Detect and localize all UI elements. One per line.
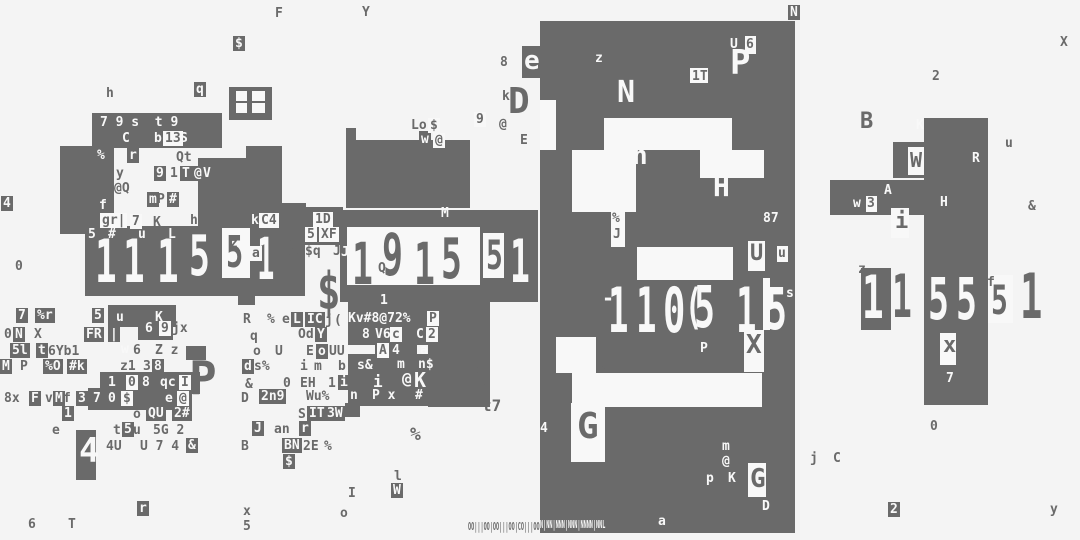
glyph: 2	[426, 327, 438, 342]
glyph: Y	[362, 6, 370, 19]
glyph: 1	[95, 232, 117, 292]
glyph: 2	[932, 70, 940, 83]
glyph: R	[972, 152, 980, 165]
glyph: j	[810, 452, 818, 465]
glyph: V	[203, 167, 211, 180]
glyph: n	[350, 389, 358, 402]
glyph: 0	[108, 392, 116, 405]
block	[572, 150, 636, 212]
glyph: e	[165, 392, 173, 405]
glyph: qc	[160, 376, 176, 389]
glyph: f	[99, 199, 107, 212]
block	[556, 337, 596, 373]
glyph: c	[390, 327, 402, 342]
glyph: 0	[15, 260, 23, 273]
glyph: @	[433, 133, 445, 148]
glyph: j	[287, 230, 295, 243]
glyph: I	[348, 487, 356, 500]
glyph: 3	[143, 360, 151, 373]
glyph: Q	[378, 262, 386, 275]
glyph: i	[300, 360, 308, 373]
glyph: 6	[472, 365, 488, 391]
glyph: G	[577, 409, 599, 445]
glyph: U	[750, 243, 763, 265]
glyph: W	[391, 483, 403, 498]
glyph: $	[283, 454, 295, 469]
glyph: (	[334, 314, 342, 327]
glyph: 1	[414, 235, 435, 293]
glyph: 1D	[313, 212, 333, 227]
glyph: @	[402, 371, 412, 387]
glyph: XF	[319, 227, 339, 242]
glyph: 5	[956, 270, 977, 328]
glyph: 87	[763, 212, 779, 225]
block	[246, 146, 282, 206]
block	[252, 91, 265, 101]
glyph: r	[299, 421, 311, 436]
glyph: z1	[120, 360, 136, 373]
glyph: %	[267, 313, 275, 326]
glyph: M	[441, 207, 449, 220]
block	[252, 103, 265, 113]
glyph: h	[106, 87, 114, 100]
glyph: 5	[189, 229, 210, 285]
glyph: 1	[123, 232, 145, 292]
glyph: FR	[84, 327, 104, 342]
glyph: $	[317, 266, 340, 318]
glyph: 5	[991, 281, 1008, 321]
glyph: @	[177, 391, 189, 406]
glyph: P	[427, 311, 439, 326]
glyph: P	[189, 355, 217, 401]
glyph: an	[274, 423, 290, 436]
glyph: x	[943, 335, 956, 357]
glyph: z	[595, 52, 603, 65]
block	[540, 100, 556, 150]
glyph: 6	[28, 518, 36, 531]
glyph: o	[253, 345, 261, 358]
glyph: 9	[474, 112, 486, 127]
glyph: M	[0, 359, 12, 374]
glyph: X	[1060, 36, 1068, 49]
glyph: D	[241, 392, 249, 405]
block	[346, 128, 356, 148]
glyph: @Q	[114, 182, 130, 195]
glyph: X	[746, 332, 762, 358]
glyph: u	[1005, 137, 1013, 150]
glyph: 1	[352, 235, 373, 293]
glyph: e	[52, 424, 60, 437]
glyph: 3	[76, 391, 88, 406]
glyph: P	[20, 360, 28, 373]
glyph: 6	[145, 322, 153, 335]
glyph: U	[275, 345, 283, 358]
glyph: m	[722, 440, 730, 453]
glyph: d	[242, 359, 254, 374]
glyph: %r	[35, 308, 55, 323]
glyph: P	[157, 193, 165, 206]
glyph: f	[63, 392, 71, 405]
glyph: 8x	[4, 392, 20, 405]
glyph: #	[167, 192, 179, 207]
glyph: x	[243, 505, 251, 518]
glyph: 6Yb1	[48, 345, 79, 358]
glyph: o	[340, 507, 348, 520]
glyph: QU	[146, 406, 166, 421]
glyph: s%	[254, 360, 270, 373]
glyph: F	[29, 391, 41, 406]
glyph: 1	[1020, 266, 1042, 328]
glyph: 7	[93, 392, 101, 405]
glyph: t	[36, 343, 48, 358]
glyph: T	[68, 518, 76, 531]
glyph: 2#	[172, 406, 192, 421]
glyph: R	[243, 313, 251, 326]
glyph: o	[133, 408, 141, 421]
glyph: #k	[67, 359, 87, 374]
glyph: N	[13, 327, 25, 342]
glyph: e	[524, 48, 540, 74]
glyph: s&	[357, 359, 373, 372]
glyph: 2n9	[259, 389, 286, 404]
glyph: 1	[170, 167, 178, 180]
glyph: D	[508, 84, 530, 120]
glyph: u	[116, 311, 124, 324]
glyph: $	[428, 118, 440, 133]
glyph: IC	[305, 312, 325, 327]
glyph: @	[722, 455, 730, 468]
glyph: 0	[126, 375, 138, 390]
block	[830, 180, 924, 215]
glyph: o	[316, 344, 328, 359]
glyph: 1	[328, 377, 336, 390]
glyph: l	[394, 470, 402, 483]
glyph: A	[884, 184, 892, 197]
glyph: C	[416, 328, 424, 341]
glyph: 2	[888, 502, 900, 517]
glyph: Od	[298, 328, 314, 341]
glyph: a	[420, 344, 428, 357]
glyph: &	[245, 378, 253, 391]
glyph: Be	[283, 245, 299, 258]
glyph: 5	[441, 232, 462, 288]
glyph: J	[341, 246, 349, 259]
glyph: 5G 2	[153, 424, 184, 437]
glyph: m	[314, 360, 322, 373]
glyph: 8	[362, 328, 370, 341]
block	[236, 91, 247, 101]
glyph: P	[700, 342, 708, 355]
glyph: w	[421, 133, 429, 146]
glyph: v	[45, 392, 53, 405]
glyph: 4	[79, 434, 99, 468]
glyph: 5	[928, 270, 949, 328]
glyph: 1	[108, 376, 116, 389]
glyph: 7	[16, 308, 28, 323]
glyph: K	[728, 472, 736, 485]
glyph: w	[853, 197, 861, 210]
glyph: 4	[540, 422, 548, 435]
glyph: 9	[159, 321, 171, 336]
glyph: 8	[152, 359, 164, 374]
glyph: t	[113, 424, 121, 437]
glyph: $	[233, 36, 245, 51]
glyph: gr|	[100, 213, 127, 228]
glyph: s	[786, 287, 794, 300]
glyph: 8	[500, 56, 508, 69]
glyph: 6	[133, 344, 141, 357]
glyph: p	[706, 472, 714, 485]
glyph: b	[154, 132, 162, 145]
block	[346, 140, 470, 208]
glyph: 4U	[106, 440, 122, 453]
glyph: $q	[305, 245, 321, 258]
glyph: B	[241, 440, 249, 453]
glyph: A	[377, 343, 389, 358]
glyph: %	[612, 212, 620, 225]
glyph: 5	[305, 227, 317, 242]
glyph: z	[230, 237, 238, 250]
glyph: 0	[4, 328, 12, 341]
glyph: 2E	[303, 440, 319, 453]
glyph: j	[325, 314, 333, 327]
glyph: 5	[766, 280, 787, 338]
glyph: 1	[862, 268, 884, 328]
glyph: u	[133, 424, 141, 437]
glyph: 4	[1, 196, 13, 211]
glyph: Kv#8@72%	[348, 312, 411, 325]
block	[238, 287, 255, 305]
glyph: 5l	[10, 343, 30, 358]
glyph: F	[275, 7, 283, 20]
glyph: J	[252, 421, 264, 436]
glyph: 1T	[692, 70, 708, 83]
glyph: UU	[329, 345, 345, 358]
glyph: T	[180, 166, 192, 181]
glyph: Wu%	[306, 390, 329, 403]
glyph: |	[108, 327, 120, 342]
glyph: i	[895, 211, 908, 233]
glyph: K	[916, 119, 924, 132]
glyph: 1	[892, 267, 912, 327]
glyph: 1	[608, 280, 629, 342]
glyph: B	[860, 111, 873, 133]
glyph: t7	[482, 398, 501, 414]
glyph: 4	[392, 344, 400, 357]
glyph: S	[298, 408, 306, 421]
glyph: %	[410, 426, 421, 444]
glyph: 1	[157, 232, 179, 292]
glyph: 1	[380, 294, 388, 307]
glyph: 8	[142, 376, 150, 389]
glyph: Z z	[155, 344, 178, 357]
glyph: S	[180, 132, 188, 145]
block	[236, 103, 247, 113]
glyph: 0	[930, 420, 938, 433]
glyph: #	[415, 389, 423, 402]
glyph: Qt	[176, 151, 192, 164]
glyph: 5	[243, 520, 251, 533]
glyph: y	[1050, 503, 1058, 516]
glyph: &	[186, 438, 198, 453]
glyph: D	[762, 500, 770, 513]
glyph: %	[324, 440, 332, 453]
glyph: 1	[62, 406, 74, 421]
glyph: 7 9 s t 9	[100, 116, 178, 129]
glyph: OO|||OO|OO|||OO|CO|||OO	[468, 521, 540, 532]
glyph: P	[730, 46, 750, 80]
glyph: q	[194, 82, 206, 97]
glyph: e	[282, 313, 290, 326]
glyph: N	[617, 78, 635, 108]
glyph: G	[750, 466, 766, 492]
glyph: 9	[154, 166, 166, 181]
glyph: E	[306, 345, 314, 358]
glyph: y	[116, 167, 124, 180]
glyph: 5	[92, 308, 104, 323]
glyph: 7	[946, 372, 954, 385]
glyph: $	[121, 391, 133, 406]
glyph: X	[34, 328, 42, 341]
glyph: W	[910, 150, 922, 170]
glyph: %O	[43, 359, 63, 374]
ascii-art-canvas: FY$hqNX28k@EeD9Lo$w@7 9 s t 9Cb13S%rQty9…	[0, 0, 1080, 540]
glyph: 5	[486, 236, 503, 276]
glyph: 1	[636, 280, 657, 342]
glyph: J	[333, 245, 341, 258]
glyph: C	[122, 132, 130, 145]
glyph: K	[414, 370, 426, 390]
glyph: %	[97, 149, 105, 162]
glyph: 5	[694, 278, 715, 336]
glyph: C	[833, 452, 841, 465]
glyph: 0	[740, 375, 748, 388]
glyph: 1	[257, 230, 274, 288]
glyph: b	[338, 360, 346, 373]
glyph: P x	[372, 389, 395, 402]
glyph: V6	[375, 328, 391, 341]
glyph: IT	[307, 406, 327, 421]
glyph: r	[137, 501, 149, 516]
glyph: 1	[510, 232, 530, 292]
glyph: N|NN|NNN|NNN|NNNN|NNL	[540, 519, 605, 530]
glyph: H	[713, 173, 730, 201]
glyph: J	[613, 228, 621, 241]
glyph: n	[632, 143, 648, 169]
block	[572, 373, 762, 407]
block	[604, 118, 732, 150]
glyph: L	[291, 312, 303, 327]
glyph: 0	[663, 280, 685, 342]
glyph: 3W	[325, 406, 345, 421]
glyph: i	[338, 375, 350, 390]
glyph: @	[499, 118, 507, 131]
glyph: Y	[315, 327, 327, 342]
glyph: u	[778, 247, 786, 260]
glyph: jx	[172, 322, 188, 335]
glyph: E	[520, 134, 528, 147]
glyph: &	[1028, 200, 1036, 213]
block	[345, 403, 360, 417]
glyph: 3	[867, 197, 875, 210]
glyph: N	[788, 5, 800, 20]
glyph: U 7 4	[140, 440, 179, 453]
glyph: a	[658, 515, 666, 528]
glyph: r	[127, 148, 139, 163]
glyph: BN	[282, 438, 302, 453]
glyph: Lo	[411, 119, 427, 132]
glyph: q	[250, 330, 258, 343]
glyph: 5	[596, 352, 608, 372]
glyph: H	[940, 196, 948, 209]
glyph: w	[121, 343, 129, 356]
block	[700, 150, 764, 178]
